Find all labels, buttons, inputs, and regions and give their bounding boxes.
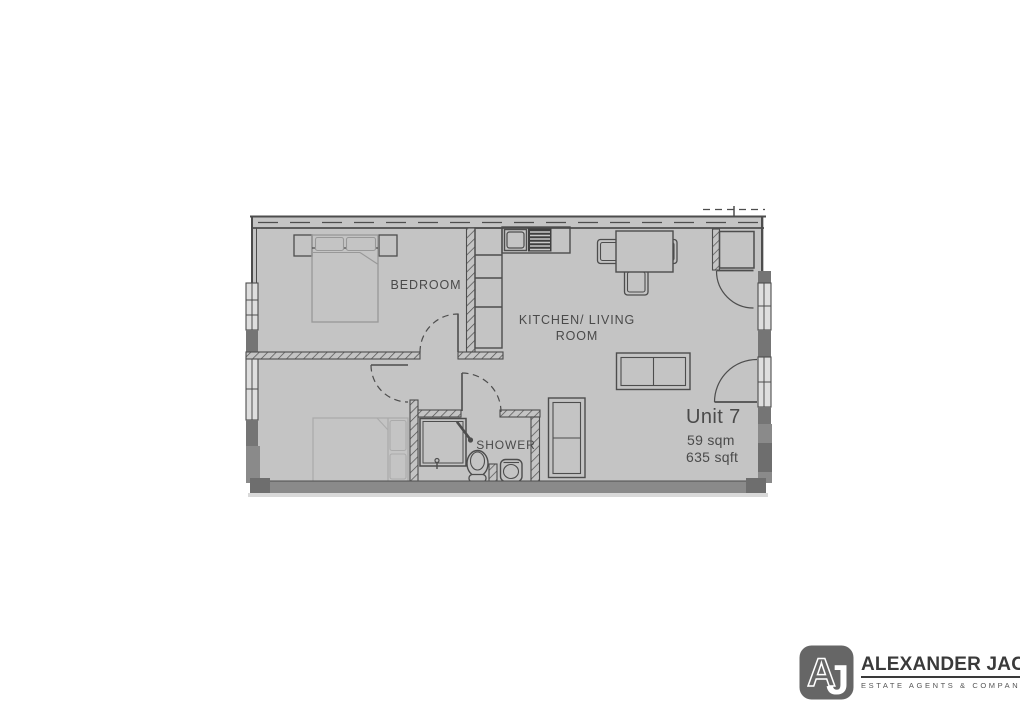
shower-label: SHOWER bbox=[476, 438, 535, 452]
floor-plan: BEDROOM KITCHEN/ LIVING ROOM SHOWER Unit… bbox=[0, 0, 1020, 721]
wall-pier bbox=[246, 420, 258, 446]
bottom-shadow bbox=[248, 493, 768, 497]
dining-table bbox=[616, 231, 673, 272]
bedroom-label: BEDROOM bbox=[391, 278, 462, 292]
nightstand-right bbox=[379, 235, 397, 256]
wall-bedroom-kitchen bbox=[467, 228, 476, 352]
wall-corner-dark bbox=[758, 443, 772, 472]
page-background: BEDROOM KITCHEN/ LIVING ROOM SHOWER Unit… bbox=[0, 0, 1020, 721]
pillow bbox=[390, 454, 406, 479]
wall-pier bbox=[758, 407, 771, 424]
logo-agency-tagline: ESTATE AGENTS & COMPANY bbox=[861, 681, 1020, 690]
wall-hall-top bbox=[458, 352, 503, 359]
kitchen-hob bbox=[528, 229, 552, 252]
unit-area-sqm: 59 sqm bbox=[687, 432, 735, 448]
wall-pier bbox=[758, 330, 771, 357]
wall-corner-dark bbox=[250, 478, 270, 493]
pillow bbox=[390, 421, 406, 451]
kitchen-living-label-line1: KITCHEN/ LIVING bbox=[519, 313, 635, 327]
logo-monogram: A J bbox=[799, 645, 854, 700]
kitchen-living-label-line2: ROOM bbox=[556, 329, 599, 343]
logo-letter-j: J bbox=[826, 656, 849, 700]
nightstand-left bbox=[294, 235, 312, 256]
unit-name: Unit 7 bbox=[686, 406, 741, 428]
wall-entry-stub bbox=[713, 229, 720, 270]
pillow bbox=[316, 238, 344, 251]
wall-bedroom2-right bbox=[410, 400, 418, 482]
wall-corner bbox=[246, 446, 260, 483]
wall-shower-top-left bbox=[418, 410, 461, 417]
wall-shower-top-right bbox=[500, 410, 540, 417]
wall-corner-dark bbox=[746, 478, 766, 493]
pillow bbox=[347, 238, 376, 251]
logo-agency-name: ALEXANDER JACOB bbox=[861, 655, 1020, 678]
agency-logo: A J ALEXANDER JACOB ESTATE AGENTS & COMP… bbox=[799, 645, 1020, 700]
wall-stub-bathroom bbox=[489, 464, 497, 482]
unit-area-sqft: 635 sqft bbox=[686, 449, 738, 465]
logo-wordmark: ALEXANDER JACOB ESTATE AGENTS & COMPANY bbox=[861, 655, 1020, 690]
shower-head bbox=[468, 437, 473, 442]
wall-pier bbox=[758, 271, 771, 283]
wall-bedroom-bottom bbox=[246, 352, 420, 359]
